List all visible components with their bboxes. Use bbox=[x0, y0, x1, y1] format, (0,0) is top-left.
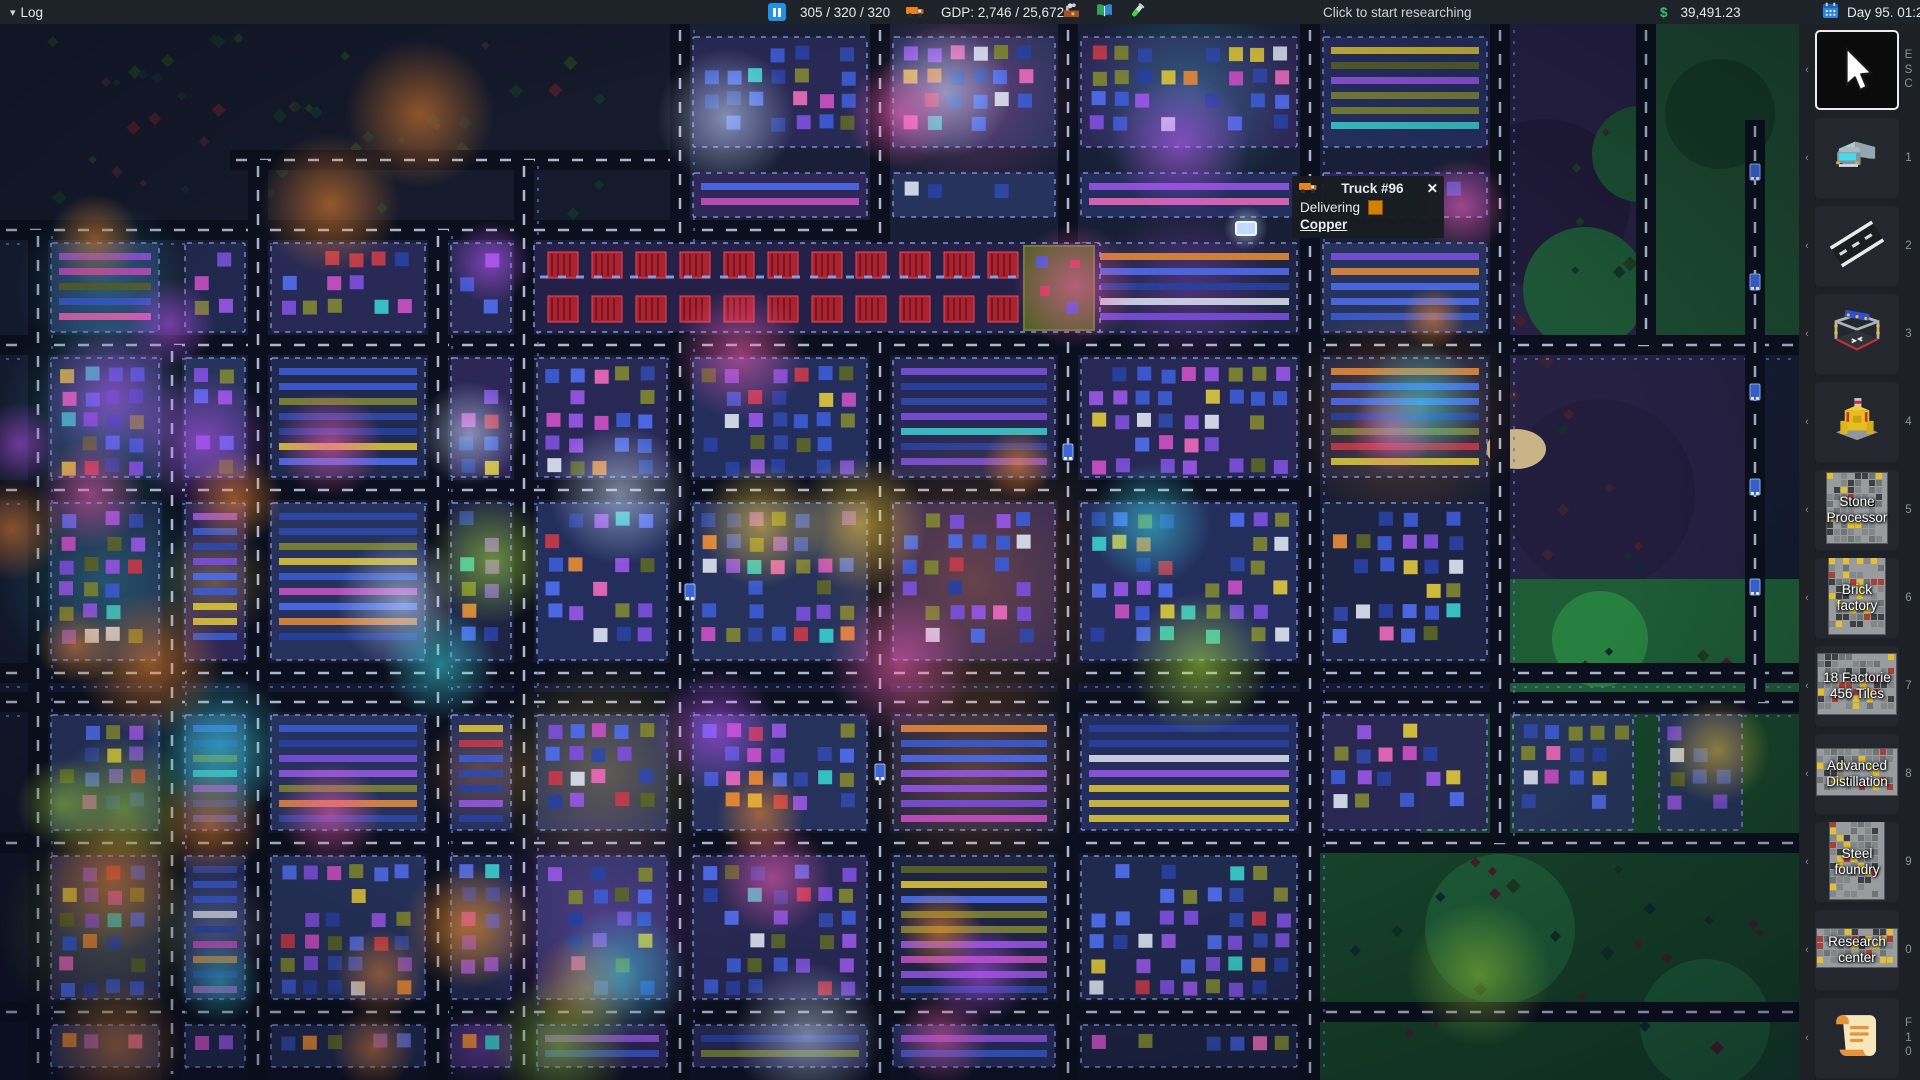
sidebar-item-steel-foundry[interactable]: Steel foundry bbox=[1815, 822, 1899, 902]
sidebar-row-log-scroll: ‹F 1 0 bbox=[1799, 998, 1920, 1078]
research-prompt[interactable]: Click to start researching bbox=[1323, 0, 1472, 24]
sidebar-row-factories-18: ‹18 Factorie 456 Tiles7 bbox=[1799, 646, 1920, 726]
sidebar-item-mining-factory[interactable] bbox=[1815, 382, 1899, 462]
collapse-chevron-icon[interactable]: ‹ bbox=[1799, 328, 1815, 340]
shortcut-key-label: 1 bbox=[1899, 151, 1918, 166]
log-caret-icon: ▾ bbox=[10, 6, 16, 19]
game-window: ▾ Log 305 / 320 / 320 GDP: 2,746 / 25,67… bbox=[0, 0, 1920, 1080]
sidebar-item-construction-tool[interactable] bbox=[1815, 294, 1899, 374]
sidebar-row-steel-foundry: ‹Steel foundry9 bbox=[1799, 822, 1920, 902]
tooltip-title: Truck #96 bbox=[1324, 181, 1421, 196]
truck-count-icon bbox=[905, 0, 925, 24]
top-bar: ▾ Log 305 / 320 / 320 GDP: 2,746 / 25,67… bbox=[0, 0, 1920, 24]
sidebar-row-select-tool: ‹E S C bbox=[1799, 30, 1920, 110]
blueprint-thumbnail bbox=[1828, 558, 1886, 638]
sidebar-item-road-tool[interactable] bbox=[1815, 206, 1899, 286]
blueprint-thumbnail bbox=[1816, 748, 1898, 801]
collapse-chevron-icon[interactable]: ‹ bbox=[1799, 944, 1815, 956]
money-value: 39,491.23 bbox=[1681, 5, 1741, 20]
sidebar-item-advanced-distillation[interactable]: Advanced Distillation bbox=[1815, 734, 1899, 814]
sidebar-row-construction-tool: ‹3 bbox=[1799, 294, 1920, 374]
shortcut-key-label: 2 bbox=[1899, 239, 1918, 254]
blueprint-thumbnail bbox=[1816, 928, 1898, 973]
log-label: Log bbox=[21, 5, 44, 20]
sidebar-item-vehicle-tool[interactable] bbox=[1815, 118, 1899, 198]
sidebar-item-brick-factory[interactable]: Brick factory bbox=[1815, 558, 1899, 638]
shortcut-key-label: 7 bbox=[1899, 679, 1918, 694]
money-readout: $ 39,491.23 bbox=[1660, 0, 1741, 24]
currency-icon: $ bbox=[1660, 5, 1668, 20]
factory-icon bbox=[1829, 392, 1885, 453]
shortcut-key-label: 6 bbox=[1899, 591, 1918, 606]
sidebar-row-mining-factory: ‹4 bbox=[1799, 382, 1920, 462]
sidebar-item-log-scroll[interactable] bbox=[1815, 998, 1899, 1078]
sidebar-item-stone-processor[interactable]: Stone Processor bbox=[1815, 470, 1899, 550]
cursor-icon bbox=[1832, 43, 1882, 98]
cargo-color-swatch bbox=[1368, 200, 1383, 215]
sidebar-item-factories-18[interactable]: 18 Factorie 456 Tiles bbox=[1815, 646, 1899, 726]
collapse-chevron-icon[interactable]: ‹ bbox=[1799, 592, 1815, 604]
collapse-chevron-icon[interactable]: ‹ bbox=[1799, 768, 1815, 780]
calendar-icon bbox=[1822, 2, 1842, 22]
shortcut-key-label: 8 bbox=[1899, 767, 1918, 782]
collapse-chevron-icon[interactable]: ‹ bbox=[1799, 680, 1815, 692]
tooltip-status: Delivering bbox=[1300, 200, 1360, 215]
tooltip-cargo[interactable]: Copper bbox=[1300, 217, 1347, 232]
blueprint-thumbnail bbox=[1829, 822, 1885, 902]
collapse-chevron-icon[interactable]: ‹ bbox=[1799, 240, 1815, 252]
collapse-chevron-icon[interactable]: ‹ bbox=[1799, 64, 1815, 76]
truck-icon bbox=[1828, 127, 1886, 190]
truck-icon bbox=[1298, 180, 1318, 197]
pause-button[interactable] bbox=[768, 3, 786, 21]
shortcut-key-label: F 1 0 bbox=[1899, 1016, 1918, 1061]
sidebar-row-road-tool: ‹2 bbox=[1799, 206, 1920, 286]
collapse-chevron-icon[interactable]: ‹ bbox=[1799, 152, 1815, 164]
close-icon[interactable]: ✕ bbox=[1427, 181, 1438, 197]
vehicle-count: 305 / 320 / 320 bbox=[800, 0, 890, 24]
shortcut-key-label: 4 bbox=[1899, 415, 1918, 430]
sidebar-row-advanced-distillation: ‹Advanced Distillation8 bbox=[1799, 734, 1920, 814]
research-tube-icon[interactable] bbox=[1128, 0, 1146, 24]
sidebar-row-vehicle-tool: ‹1 bbox=[1799, 118, 1920, 198]
factory-icon bbox=[1062, 0, 1081, 24]
collapse-chevron-icon[interactable]: ‹ bbox=[1799, 856, 1815, 868]
game-map-viewport[interactable] bbox=[0, 24, 1799, 1080]
blueprint-thumbnail bbox=[1817, 653, 1897, 720]
log-toggle[interactable]: ▾ Log bbox=[10, 0, 43, 24]
sidebar-item-select-tool[interactable] bbox=[1815, 30, 1899, 110]
gdp-readout: GDP: 2,746 / 25,672 bbox=[941, 0, 1064, 24]
collapse-chevron-icon[interactable]: ‹ bbox=[1799, 416, 1815, 428]
sidebar-row-research-center: ‹Research center0 bbox=[1799, 910, 1920, 990]
ledger-book-icon[interactable] bbox=[1095, 0, 1114, 24]
collapse-chevron-icon[interactable]: ‹ bbox=[1799, 1032, 1815, 1044]
sidebar-row-stone-processor: ‹Stone Processor5 bbox=[1799, 470, 1920, 550]
construction-icon bbox=[1829, 304, 1885, 365]
blueprint-thumbnail bbox=[1826, 472, 1888, 549]
scroll-icon bbox=[1828, 1007, 1886, 1070]
collapse-chevron-icon[interactable]: ‹ bbox=[1799, 504, 1815, 516]
sidebar-item-research-center[interactable]: Research center bbox=[1815, 910, 1899, 990]
date-readout: Day 95. 01:20 bbox=[1822, 0, 1920, 24]
shortcut-key-label: 9 bbox=[1899, 855, 1918, 870]
road-icon bbox=[1829, 216, 1885, 277]
shortcut-key-label: 5 bbox=[1899, 503, 1918, 518]
shortcut-key-label: 0 bbox=[1899, 943, 1918, 958]
shortcut-key-label: E S C bbox=[1899, 48, 1918, 93]
build-toolbar: ‹E S C‹1‹2‹3‹4‹Stone Processor5‹Brick fa… bbox=[1799, 24, 1920, 1080]
truck-tooltip: Truck #96 ✕ Delivering Copper bbox=[1292, 176, 1444, 238]
sidebar-row-brick-factory: ‹Brick factory6 bbox=[1799, 558, 1920, 638]
shortcut-key-label: 3 bbox=[1899, 327, 1918, 342]
date-value: Day 95. 01:20 bbox=[1847, 5, 1920, 20]
